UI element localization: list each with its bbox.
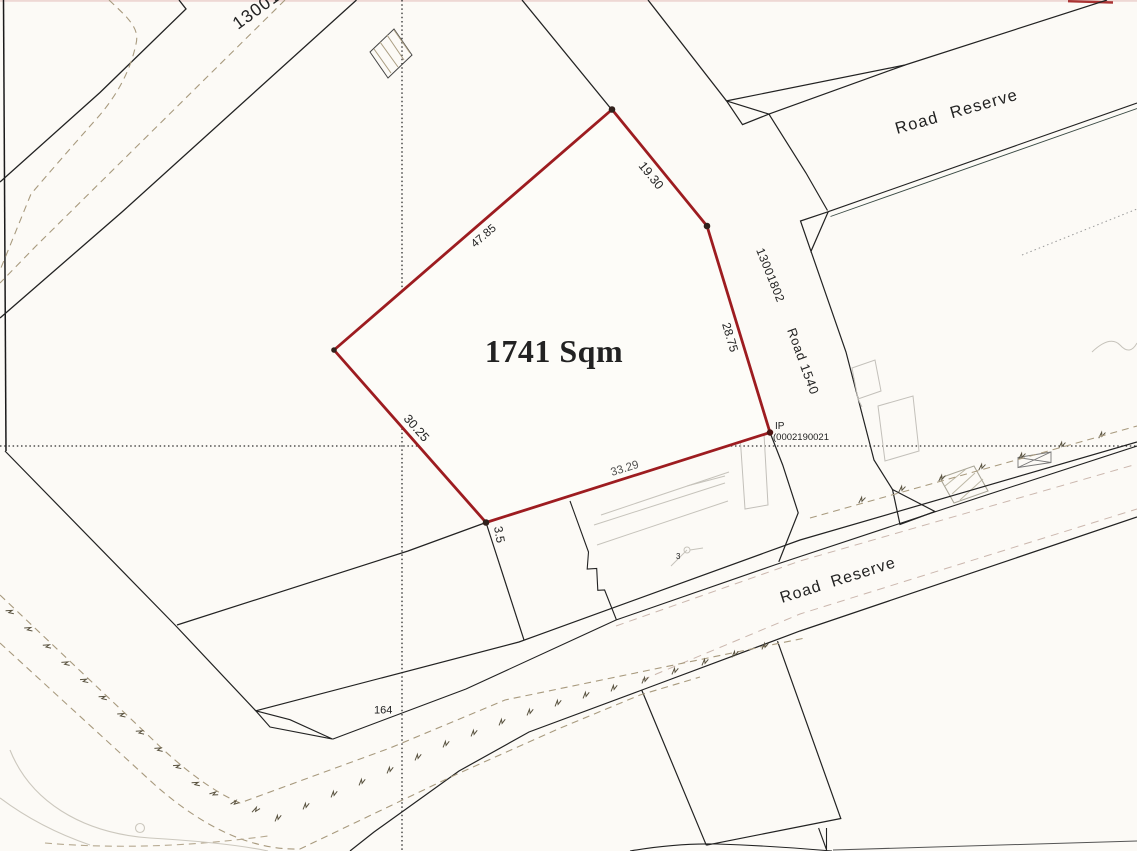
svg-text:1741 Sqm: 1741 Sqm <box>485 333 623 369</box>
svg-text:3: 3 <box>676 552 681 561</box>
svg-text:(0002190021: (0002190021 <box>773 432 829 443</box>
svg-text:IP: IP <box>775 421 785 432</box>
svg-text:3.5: 3.5 <box>491 525 508 544</box>
svg-text:164: 164 <box>374 705 392 717</box>
